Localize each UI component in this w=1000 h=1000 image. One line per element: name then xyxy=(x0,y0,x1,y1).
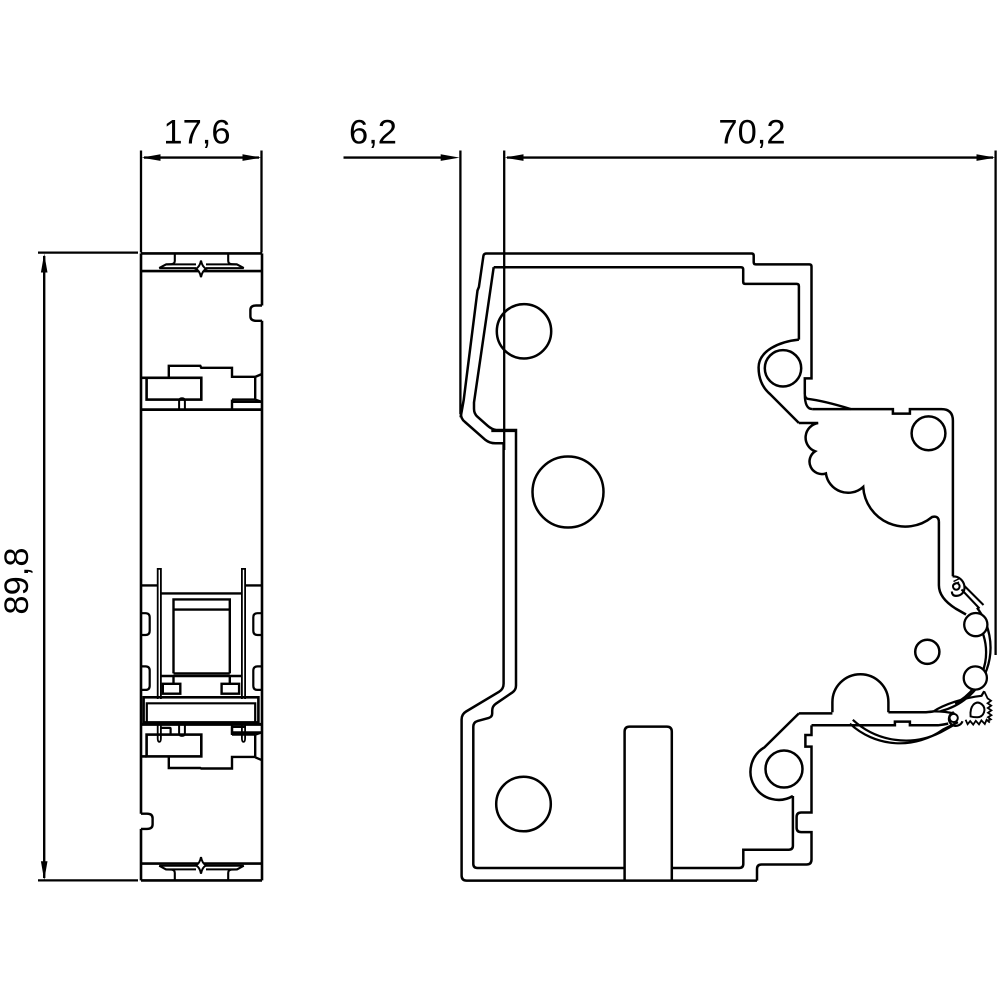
svg-text:6,2: 6,2 xyxy=(349,114,397,152)
svg-text:17,6: 17,6 xyxy=(163,114,230,152)
svg-text:89,8: 89,8 xyxy=(0,547,36,614)
svg-text:70,2: 70,2 xyxy=(718,114,785,152)
